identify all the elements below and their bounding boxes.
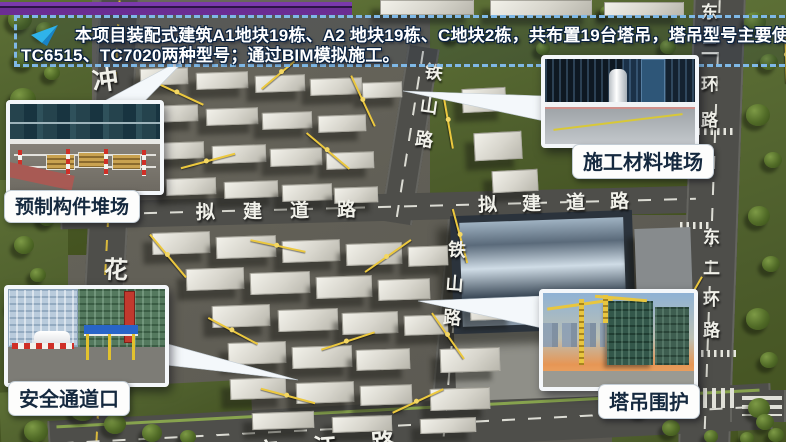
precast-stack <box>46 154 75 170</box>
building-block <box>140 67 189 86</box>
tree <box>180 430 196 442</box>
green-mesh-building <box>78 289 165 347</box>
building-block <box>470 299 517 321</box>
road-label-hua: 花 <box>103 249 129 285</box>
crane-fence-image <box>543 293 694 387</box>
tree <box>748 206 770 226</box>
glass-building-center <box>607 301 653 365</box>
building-block <box>362 81 403 98</box>
precast-stack <box>112 154 141 170</box>
tree <box>746 104 770 126</box>
building-block <box>196 71 249 90</box>
zebra-crossing <box>694 388 734 408</box>
building-block <box>212 144 267 164</box>
tree <box>142 424 162 442</box>
building-block <box>380 0 474 15</box>
striped-post <box>142 150 146 176</box>
building-block <box>250 271 311 295</box>
city-skyline <box>543 323 605 347</box>
inset-material-yard <box>541 55 699 148</box>
building-block <box>186 267 245 291</box>
striped-barrier <box>12 343 74 349</box>
building-block <box>490 0 592 16</box>
tree <box>704 430 718 442</box>
building-block <box>342 311 399 335</box>
tree <box>746 308 770 330</box>
building-block <box>230 377 287 400</box>
purple-accent-bar <box>0 2 352 15</box>
label-material-yard: 施工材料堆场 <box>572 144 714 179</box>
inset-crane-fence <box>539 289 698 391</box>
building-block <box>252 411 315 430</box>
label-safety-gate: 安全通道口 <box>8 381 130 416</box>
blue-tower <box>641 59 665 104</box>
precast-stack <box>78 152 107 168</box>
striped-post <box>66 149 70 175</box>
building-block <box>216 235 277 259</box>
building-block <box>255 74 306 93</box>
building-block <box>282 239 341 263</box>
site-fence <box>545 102 695 109</box>
crane-mast <box>603 295 608 323</box>
building-block <box>440 347 501 373</box>
tree <box>14 236 34 254</box>
building-block <box>360 384 413 406</box>
tree <box>768 428 784 442</box>
building-block <box>356 348 411 371</box>
yard-ground <box>545 104 695 144</box>
building-block <box>152 231 211 255</box>
building-block <box>378 278 431 301</box>
canopy-leg <box>86 334 89 360</box>
canopy-leg <box>108 334 111 360</box>
tree <box>740 432 754 442</box>
safety-canopy <box>84 325 138 334</box>
building-block <box>461 87 506 113</box>
tree <box>104 414 126 434</box>
building-block <box>316 275 373 299</box>
label-precast-yard: 预制构件堆场 <box>4 190 140 223</box>
building-block <box>346 242 403 266</box>
building-block <box>270 147 323 167</box>
building-block <box>278 308 339 332</box>
road-label-ring-mid: 东二环路 <box>697 228 722 352</box>
building-band <box>10 122 160 124</box>
road-label-planned-left: 拟建道路 <box>196 194 384 224</box>
building-block <box>473 131 522 161</box>
bim-site-overview: 铁山路 铁山路 东二环路 东二环路 拟建道路 拟建道路 冲 花 安江路 本项目装… <box>0 0 786 442</box>
building-block <box>318 114 367 133</box>
cement-silo <box>609 69 627 105</box>
safety-gate-image <box>8 289 165 383</box>
crane-mast <box>579 299 584 365</box>
building-block <box>206 107 259 126</box>
label-crane-fence: 塔吊围护 <box>598 384 700 419</box>
building-block <box>604 2 684 16</box>
tree <box>24 420 48 442</box>
material-yard-image <box>545 59 695 144</box>
building-block <box>262 111 313 130</box>
banner-text-line2: TC6515、TC7020两种型号；通过BIM模拟施工。 <box>21 41 400 66</box>
inset-precast-yard <box>6 100 164 195</box>
striped-post <box>104 149 108 175</box>
precast-yard-image <box>10 104 160 191</box>
road-label-planned-right: 拟建道路 <box>478 186 655 218</box>
building-block <box>166 177 217 196</box>
glass-building-right <box>655 307 689 365</box>
inset-safety-gate <box>4 285 169 387</box>
canopy-leg <box>132 334 135 360</box>
